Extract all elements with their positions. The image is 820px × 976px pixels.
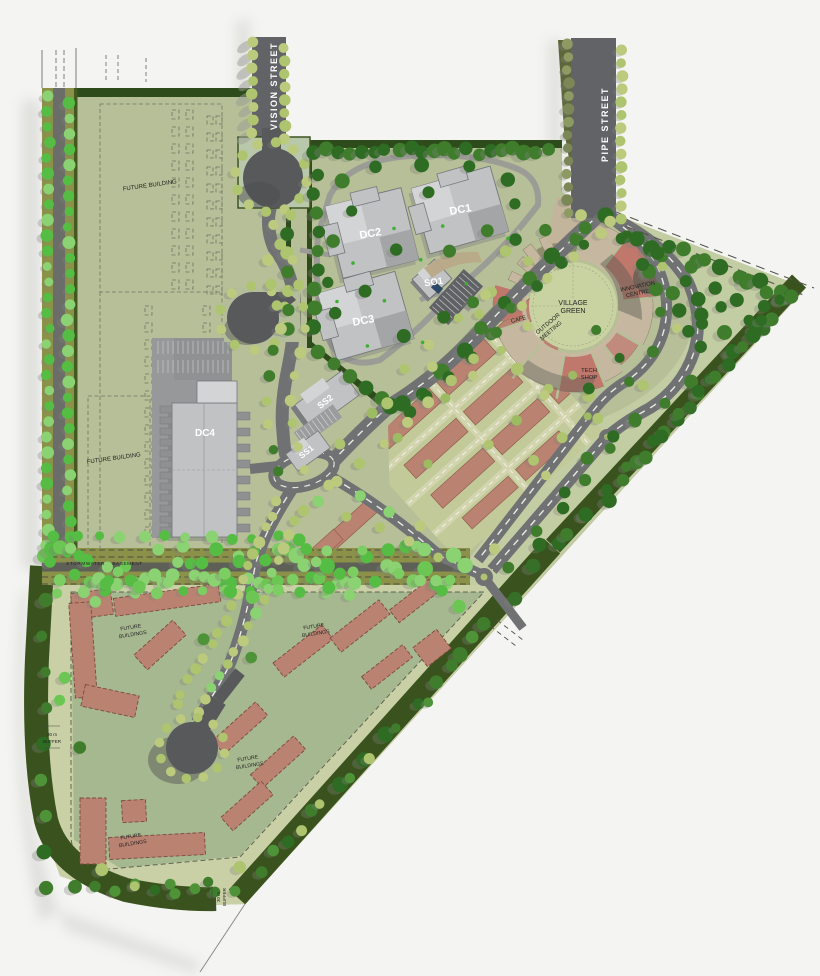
svg-text:30 m: 30 m — [216, 892, 221, 902]
svg-text:VILLAGE: VILLAGE — [558, 300, 588, 307]
svg-text:DC4: DC4 — [195, 428, 215, 439]
svg-text:VISION STREET: VISION STREET — [269, 42, 279, 130]
svg-text:STORMWATER EASEMENT: STORMWATER EASEMENT — [66, 561, 143, 567]
svg-text:30 m: 30 m — [47, 732, 57, 737]
svg-text:PIPE STREET: PIPE STREET — [600, 87, 610, 162]
svg-text:SHOP: SHOP — [581, 375, 598, 381]
svg-text:TECH: TECH — [581, 368, 597, 374]
svg-text:GREEN: GREEN — [561, 308, 586, 315]
svg-text:BUFFER: BUFFER — [222, 887, 227, 906]
svg-text:BUFFER: BUFFER — [43, 739, 62, 744]
